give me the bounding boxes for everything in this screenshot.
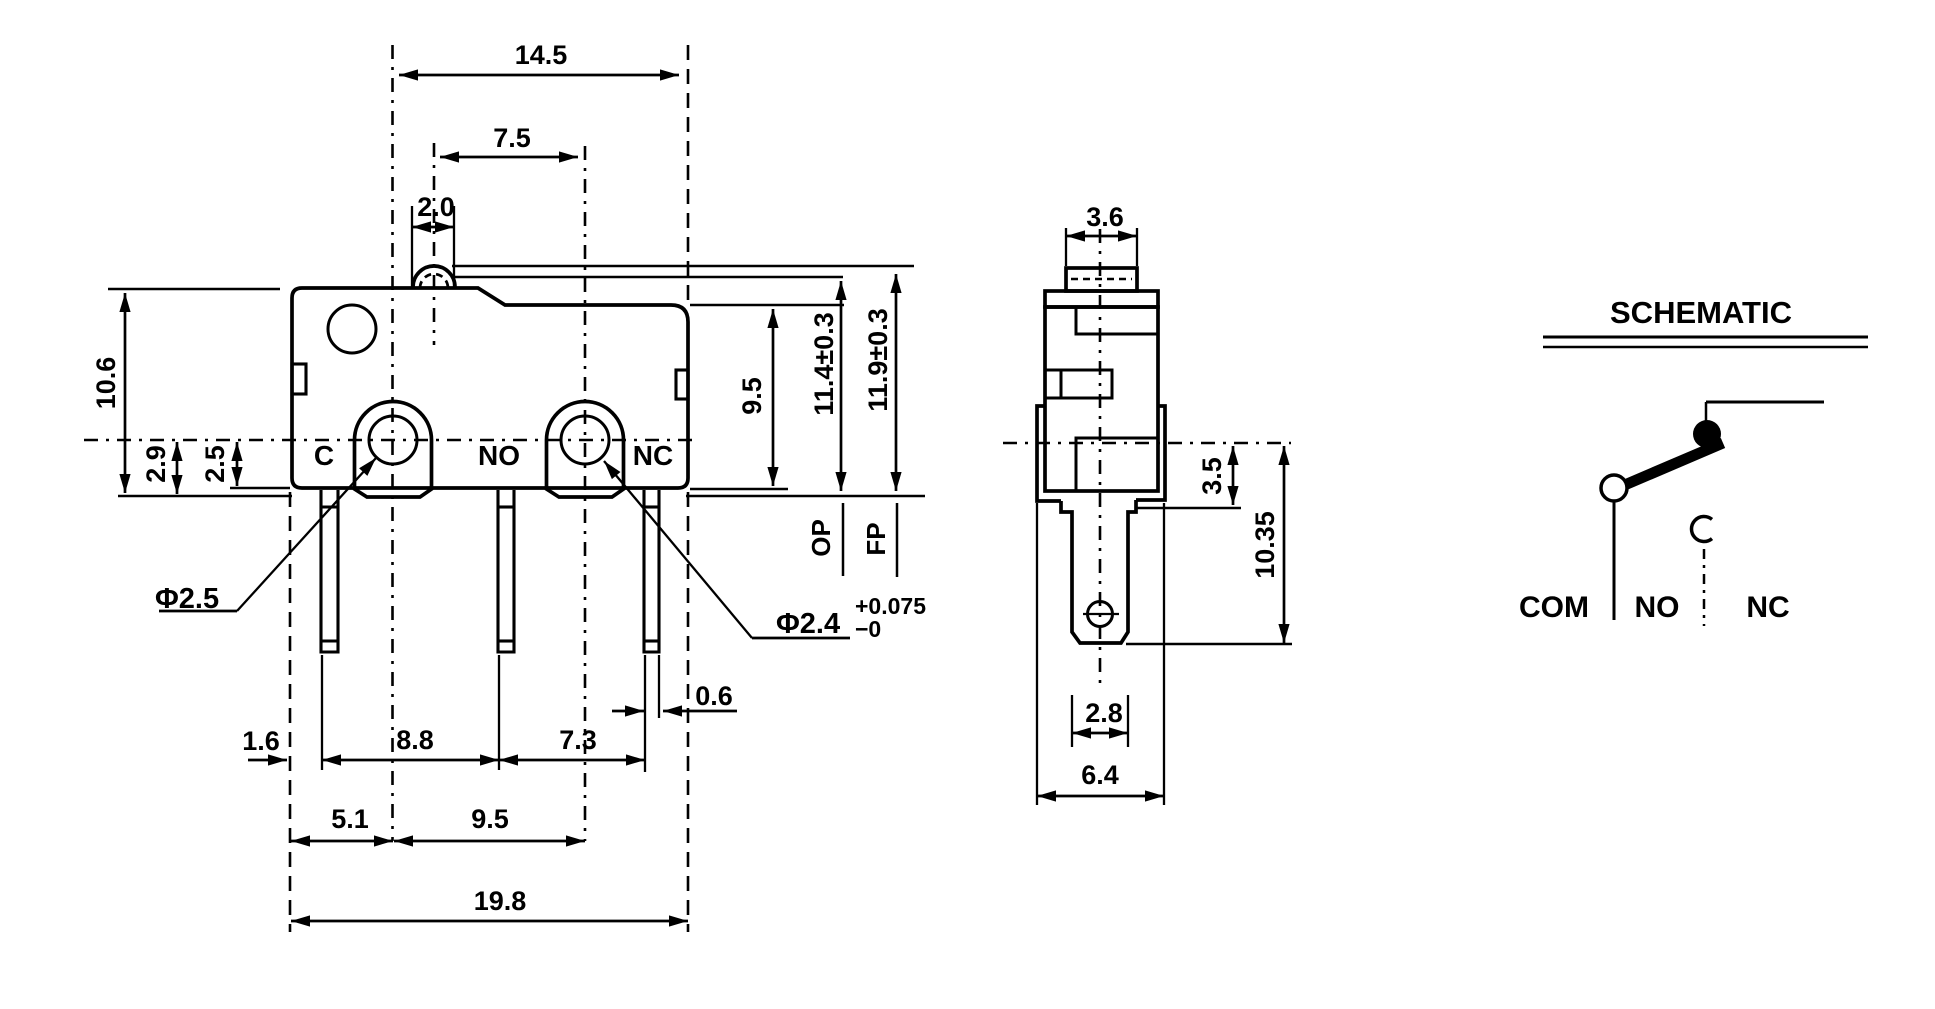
svg-text:NO: NO <box>478 440 520 471</box>
svg-text:8.8: 8.8 <box>396 725 434 755</box>
svg-text:0.6: 0.6 <box>695 681 733 711</box>
svg-text:5.1: 5.1 <box>331 804 369 834</box>
svg-text:10.35: 10.35 <box>1250 511 1280 579</box>
svg-text:NC: NC <box>633 440 673 471</box>
svg-text:SCHEMATIC: SCHEMATIC <box>1610 295 1792 330</box>
svg-text:Φ2.4: Φ2.4 <box>776 608 840 640</box>
svg-text:3.6: 3.6 <box>1086 202 1124 232</box>
svg-text:NC: NC <box>1746 591 1789 624</box>
svg-text:1.6: 1.6 <box>242 726 280 756</box>
svg-text:9.5: 9.5 <box>737 377 767 415</box>
svg-text:19.8: 19.8 <box>474 886 527 916</box>
svg-text:7.3: 7.3 <box>559 725 597 755</box>
svg-text:11.4±0.3: 11.4±0.3 <box>809 312 839 415</box>
svg-text:2.9: 2.9 <box>141 445 171 483</box>
svg-text:OP: OP <box>806 519 836 557</box>
svg-text:6.4: 6.4 <box>1081 760 1119 790</box>
svg-text:2.8: 2.8 <box>1085 698 1123 728</box>
svg-text:COM: COM <box>1519 591 1589 624</box>
svg-text:C: C <box>314 440 334 471</box>
svg-text:3.5: 3.5 <box>1197 457 1227 495</box>
svg-text:2.5: 2.5 <box>200 445 230 483</box>
svg-text:−0: −0 <box>855 616 881 642</box>
svg-text:11.9±0.3: 11.9±0.3 <box>863 308 893 411</box>
svg-text:NO: NO <box>1635 591 1680 624</box>
svg-text:FP: FP <box>861 522 891 555</box>
svg-text:7.5: 7.5 <box>493 123 531 153</box>
svg-text:9.5: 9.5 <box>471 804 509 834</box>
svg-text:14.5: 14.5 <box>515 40 568 70</box>
svg-text:2.0: 2.0 <box>417 192 455 222</box>
svg-text:10.6: 10.6 <box>91 357 121 410</box>
